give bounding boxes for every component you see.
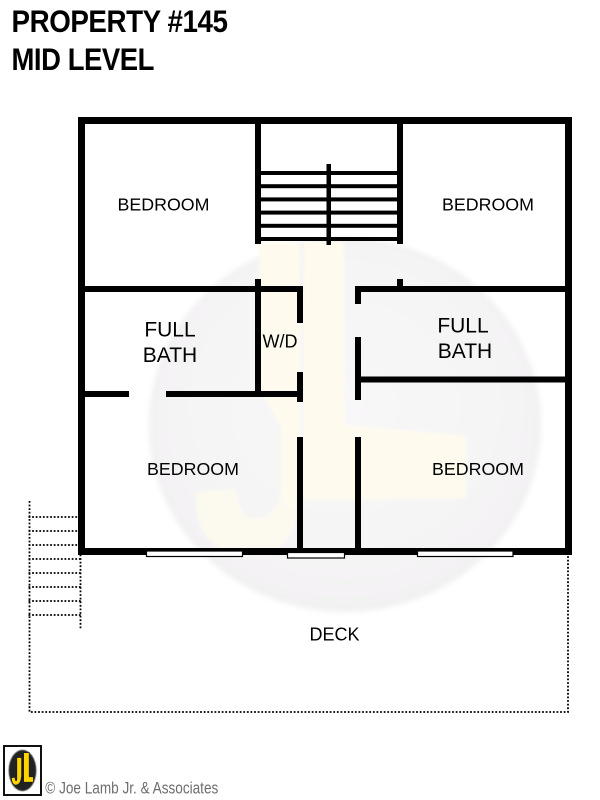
svg-text:FULL: FULL [437,315,488,338]
svg-text:BATH: BATH [143,344,197,367]
svg-text:PROPERTY #145: PROPERTY #145 [12,3,228,39]
svg-text:BEDROOM: BEDROOM [147,459,239,479]
svg-text:BATH: BATH [438,340,492,363]
svg-text:BEDROOM: BEDROOM [432,459,524,479]
svg-text:© Joe Lamb Jr. & Associates: © Joe Lamb Jr. & Associates [45,779,218,798]
svg-text:BEDROOM: BEDROOM [442,195,534,215]
svg-text:BEDROOM: BEDROOM [118,195,210,215]
svg-text:W/D: W/D [263,332,298,352]
svg-text:DECK: DECK [309,625,359,645]
svg-text:FULL: FULL [144,319,195,342]
svg-text:MID LEVEL: MID LEVEL [12,41,155,77]
